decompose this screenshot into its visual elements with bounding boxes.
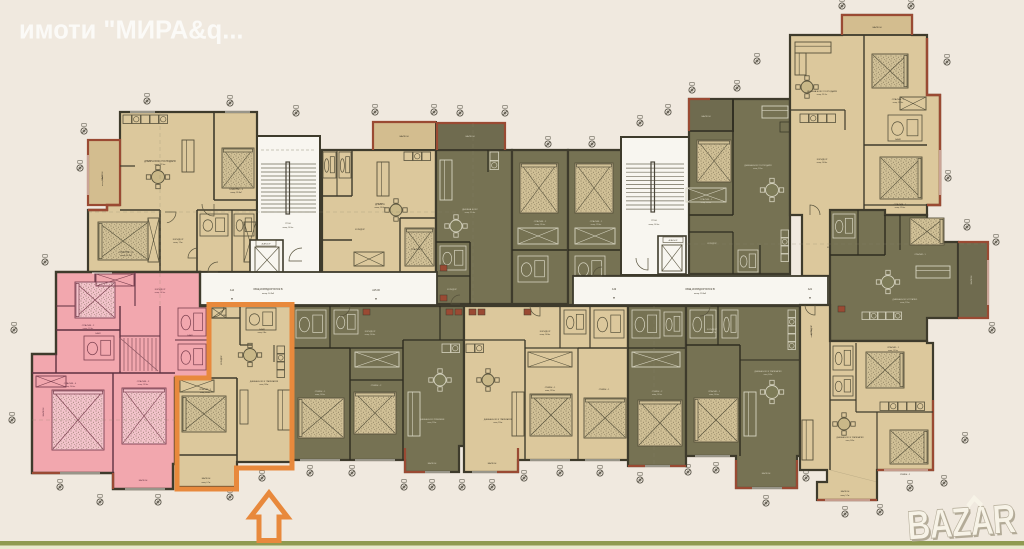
svg-text:БАЛКОН: БАЛКОН <box>202 477 211 480</box>
svg-text:площ: 16.5м²: площ: 16.5м² <box>120 254 132 257</box>
svg-text:площ: 4.3м²: площ: 4.3м² <box>101 176 104 186</box>
svg-text:СПАЛНЯ - 1: СПАЛНЯ - 1 <box>199 388 212 391</box>
svg-text:КОРИДОР: КОРИДОР <box>447 289 457 291</box>
svg-text:площ: 13.0м²: площ: 13.0м² <box>200 391 211 394</box>
svg-text:площ: 14.8м²: площ: 14.8м² <box>315 393 326 396</box>
svg-text:площ: 10.1м²: площ: 10.1м² <box>155 291 166 294</box>
svg-text:СПАЛНЯ - 2: СПАЛНЯ - 2 <box>119 251 133 254</box>
svg-text:площ: 7.2м²: площ: 7.2м² <box>173 241 183 244</box>
svg-text:А19: А19 <box>612 288 617 291</box>
svg-text:КОРИДОР: КОРИДОР <box>540 331 551 333</box>
svg-text:А21: А21 <box>808 288 813 291</box>
svg-text:ОБЩ.КОРИДОР БЛОК В: ОБЩ.КОРИДОР БЛОК В <box>685 287 715 291</box>
svg-text:СПАЛНЯ - 3: СПАЛНЯ - 3 <box>137 380 150 383</box>
svg-text:площ: 19.8м²: площ: 19.8м² <box>374 206 385 209</box>
svg-text:площ: 20.6м²: площ: 20.6м² <box>65 385 76 388</box>
svg-text:▼: ▼ <box>231 297 234 301</box>
svg-text:площ: 12.8м²: площ: 12.8м² <box>591 223 602 226</box>
svg-text:КОРИДОР: КОРИДОР <box>155 289 166 291</box>
svg-text:площ: 10.8м²: площ: 10.8м² <box>365 333 376 336</box>
svg-text:БАНЯ: БАНЯ <box>95 332 101 335</box>
svg-text:площ: 23.0м²: площ: 23.0м² <box>694 292 706 295</box>
svg-text:КОРИДОР: КОРИДОР <box>817 159 828 161</box>
svg-text:КОРИДОР: КОРИДОР <box>707 329 718 331</box>
svg-text:КОРИДОР: КОРИДОР <box>221 355 223 365</box>
svg-text:БАНЯ: БАНЯ <box>895 138 901 141</box>
svg-text:А14: А14 <box>230 289 235 292</box>
svg-text:СПАЛНЯ - 1: СПАЛНЯ - 1 <box>590 220 603 223</box>
svg-text:БАЛКОН: БАЛКОН <box>841 490 850 493</box>
svg-text:ПЛ.Н: ПЛ.Н <box>285 223 291 225</box>
svg-text:КЛЕР: КЛЕР <box>222 315 228 317</box>
svg-text:площ: 13.9м²: площ: 13.9м² <box>888 349 899 352</box>
svg-text:BAZAR: BAZAR <box>906 496 1017 549</box>
svg-text:ДНЕВНА БОКС ПРЕВЗЕМИ: ДНЕВНА БОКС ПРЕВЗЕМИ <box>420 418 445 421</box>
svg-text:БАЛКОН: БАЛКОН <box>873 26 882 29</box>
svg-text:БАЛКОН: БАЛКОН <box>139 479 148 482</box>
svg-text:СПАЛНЯ - 1: СПАЛНЯ - 1 <box>887 346 900 349</box>
svg-text:СТАЯ/Н - 1: СТАЯ/Н - 1 <box>315 390 326 393</box>
svg-text:имоти "МИРА&q...: имоти "МИРА&q... <box>19 17 243 45</box>
svg-text:ДНЕВНА БОКС ГОСПОДАРЯ: ДНЕВНА БОКС ГОСПОДАРЯ <box>744 164 772 167</box>
svg-text:БАЛКОН: БАЛКОН <box>428 462 437 465</box>
svg-text:СПАЛНЯ - 1: СПАЛНЯ - 1 <box>708 390 721 393</box>
svg-text:СПАЛНЯ - 1: СПАЛНЯ - 1 <box>411 248 424 251</box>
svg-text:СПАЛНЯ - 1: СПАЛНЯ - 1 <box>894 203 907 206</box>
svg-text:СПАЛНЯ - 1: СПАЛНЯ - 1 <box>914 253 926 256</box>
svg-text:ДНЕВНА БОКС И ТРАПЕЗАРИЯ: ДНЕВНА БОКС И ТРАПЕЗАРИЯ <box>250 380 279 383</box>
svg-text:площ: 13.9м²: площ: 13.9м² <box>545 389 556 392</box>
svg-text:площ: 10.9м²: площ: 10.9м² <box>649 223 660 226</box>
svg-text:СТАЯ/Н - 1: СТАЯ/Н - 1 <box>599 388 610 391</box>
svg-text:БАНЯ: БАНЯ <box>187 334 193 337</box>
svg-text:площ: 13.9м²: площ: 13.9м² <box>652 393 663 396</box>
svg-text:БАЛКОН: БАЛКОН <box>400 135 409 138</box>
svg-text:БАЛКОН: БАЛКОН <box>42 407 45 416</box>
svg-text:КОРИДОР: КОРИДОР <box>173 239 184 241</box>
svg-text:ДНЕВНА БОКС И ТРАПЕЗАРИЯ: ДНЕВНА БОКС И ТРАПЕЗАРИЯ <box>484 418 513 421</box>
svg-text:площ: 11.9м²: площ: 11.9м² <box>83 327 94 330</box>
svg-text:площ: 13.0м²: площ: 13.0м² <box>535 223 546 226</box>
svg-text:А15.06: А15.06 <box>372 289 380 292</box>
svg-text:▼: ▼ <box>613 296 616 300</box>
svg-text:БАЛКОН: БАЛКОН <box>970 275 973 284</box>
svg-text:СТАЯ/Н - 2: СТАЯ/Н - 2 <box>371 384 382 387</box>
svg-text:площ: 5.7м²: площ: 5.7м² <box>840 494 850 497</box>
svg-text:КОРИДОР: КОРИДОР <box>365 331 376 333</box>
svg-text:площ: 14.3м²: площ: 14.3м² <box>262 292 274 295</box>
svg-text:ДНЕВНА БОКС: ДНЕВНА БОКС <box>462 208 478 211</box>
svg-text:БАЛКОН: БАЛКОН <box>488 462 497 465</box>
svg-text:площ: 10.8м²: площ: 10.8м² <box>540 333 551 336</box>
svg-text:БАЛКОН: БАЛКОН <box>702 115 711 118</box>
svg-text:ОБЩ.КОРИДОР БЛОК Б: ОБЩ.КОРИДОР БЛОК Б <box>253 287 283 291</box>
svg-text:СПАЛНЯ - 2: СПАЛНЯ - 2 <box>534 220 547 223</box>
svg-text:площ: 21.4м²: площ: 21.4м² <box>465 211 476 214</box>
svg-text:ДНЕВНА: ДНЕВНА <box>375 203 385 206</box>
svg-text:СПАЛНЯ - 2: СПАЛНЯ - 2 <box>82 324 95 327</box>
svg-text:▼: ▼ <box>809 296 812 300</box>
svg-text:площ: 13.9м²: площ: 13.9м² <box>138 383 149 386</box>
svg-text:КОРИДОР: КОРИДОР <box>355 229 365 231</box>
svg-text:СПАЛНЯ - 4: СПАЛНЯ - 4 <box>64 382 77 385</box>
svg-text:площ: 25.7м²: площ: 25.7м² <box>817 93 828 96</box>
svg-text:БАНЯ: БАНЯ <box>259 328 265 331</box>
svg-text:ДНЕВНА БОКС И ТРАПЕЗ.: ДНЕВНА БОКС И ТРАПЕЗ. <box>892 298 917 301</box>
svg-text:площ: 12.6м²: площ: 12.6м² <box>895 206 906 209</box>
svg-text:площ: 10.8м²: площ: 10.8м² <box>817 161 828 164</box>
svg-text:БАЛКОН: БАЛКОН <box>466 135 475 138</box>
svg-text:СПАЛНЯ - 1: СПАЛНЯ - 1 <box>229 188 243 191</box>
svg-text:ДНЕВНА БОКС И ТРАПЕЗАРИЯ: ДНЕВНА БОКС И ТРАПЕЗАРИЯ <box>755 370 783 373</box>
svg-text:СТАЯ/Н - 2: СТАЯ/Н - 2 <box>900 473 911 476</box>
svg-text:ПЛ.Н: ПЛ.Н <box>651 220 657 222</box>
svg-text:ДНЕВНА БОКС ГОСПОДАРЯ: ДНЕВНА БОКС ГОСПОДАРЯ <box>807 90 837 93</box>
svg-text:СПАЛНЯ - 1: СПАЛНЯ - 1 <box>700 198 713 201</box>
svg-text:площ: 7.2м²: площ: 7.2м² <box>707 331 717 334</box>
svg-text:ДНЕВНА БОКС И ТРАПЕЗАРИЯ: ДНЕВНА БОКС И ТРАПЕЗАРИЯ <box>837 436 865 439</box>
svg-text:площ: 10.9м²: площ: 10.9м² <box>283 226 294 229</box>
svg-text:площ: 13.0м²: площ: 13.0м² <box>701 201 712 204</box>
svg-text:площ: 14.0м²: площ: 14.0м² <box>709 393 720 396</box>
svg-text:СТАЯ/Н - 1: СТАЯ/Н - 1 <box>545 386 556 389</box>
svg-text:СТАЯ/Н - 2: СТАЯ/Н - 2 <box>652 390 663 393</box>
svg-text:площ: 13.8м²: площ: 13.8м² <box>230 191 242 194</box>
svg-text:БАЛКОН: БАЛКОН <box>762 472 771 475</box>
svg-text:▼: ▼ <box>375 297 378 301</box>
svg-text:СПАЛНЯ - 2: СПАЛНЯ - 2 <box>892 98 905 101</box>
svg-text:площ: 6.7м²: площ: 6.7м² <box>201 481 211 484</box>
svg-text:площ: 12.9м²: площ: 12.9м² <box>893 101 904 104</box>
